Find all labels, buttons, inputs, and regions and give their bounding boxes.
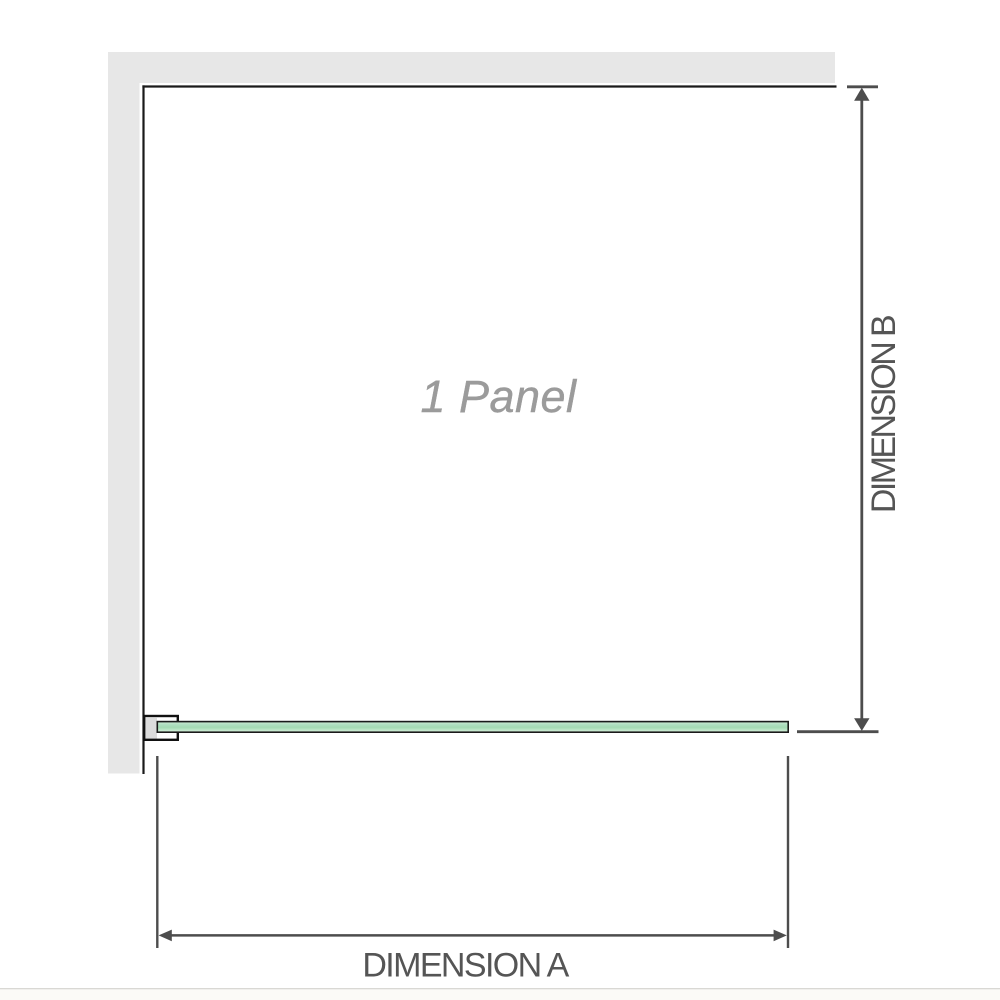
svg-text:DIMENSION A: DIMENSION A [362, 947, 569, 985]
svg-text:DIMENSION B: DIMENSION B [865, 316, 903, 513]
svg-text:1 Panel: 1 Panel [420, 371, 578, 422]
